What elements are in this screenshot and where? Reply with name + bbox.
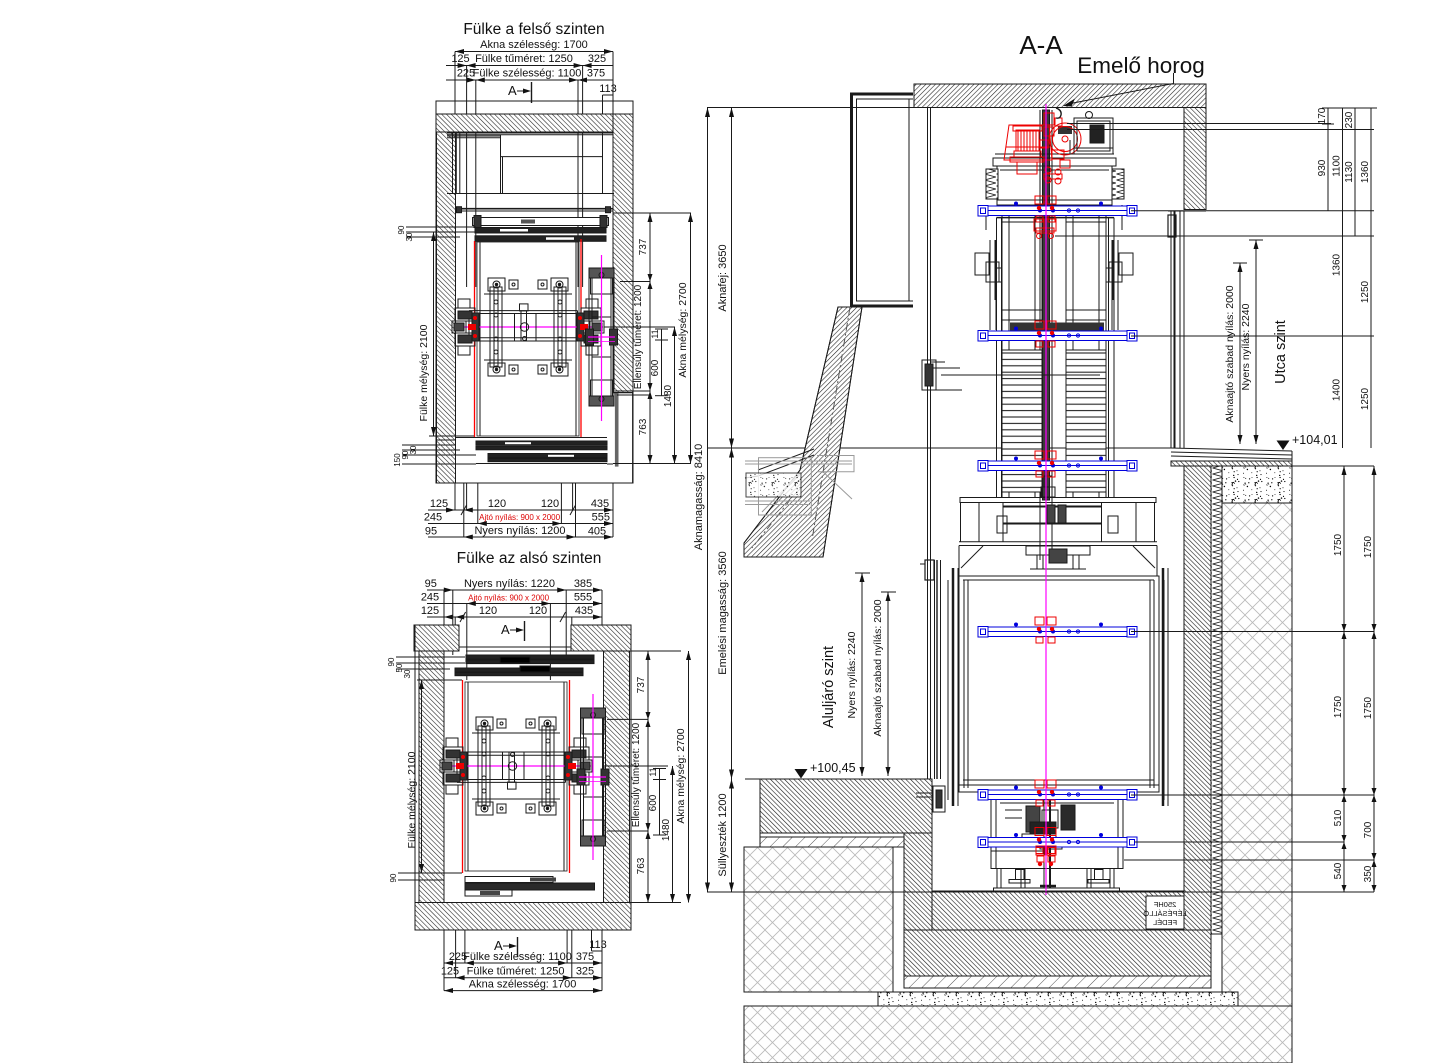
svg-text:1250: 1250 (1360, 280, 1371, 303)
svg-text:435: 435 (575, 605, 593, 617)
svg-text:763: 763 (636, 857, 647, 874)
svg-text:FEDÉL: FEDÉL (1153, 918, 1177, 927)
svg-text:LÉPÉSÁLLÓ: LÉPÉSÁLLÓ (1143, 909, 1187, 918)
svg-text:Emelő horog: Emelő horog (1077, 53, 1205, 78)
svg-text:Nyers nyílás: 2240: Nyers nyílás: 2240 (846, 631, 858, 718)
svg-text:385: 385 (574, 578, 592, 590)
svg-text:600: 600 (648, 794, 659, 811)
svg-text:95: 95 (425, 526, 437, 538)
svg-text:+104,01: +104,01 (1292, 433, 1338, 447)
svg-text:125: 125 (441, 966, 459, 978)
svg-text:125: 125 (430, 498, 448, 510)
svg-text:763: 763 (638, 418, 649, 435)
svg-text:325: 325 (588, 53, 606, 65)
svg-text:245: 245 (424, 512, 442, 524)
svg-text:555: 555 (574, 592, 592, 604)
svg-text:1130: 1130 (1344, 161, 1355, 183)
svg-text:737: 737 (636, 676, 647, 693)
svg-text:Fülke szélesség: 1100: Fülke szélesség: 1100 (473, 68, 582, 80)
svg-text:113: 113 (589, 939, 607, 951)
svg-text:1750: 1750 (1363, 696, 1374, 719)
svg-text:Süllyeszték 1200: Süllyeszték 1200 (717, 793, 729, 876)
svg-text:Fülke a felső szinten: Fülke a felső szinten (463, 21, 604, 38)
svg-text:Aknafej: 3650: Aknafej: 3650 (717, 244, 729, 311)
svg-text:A-A: A-A (1019, 30, 1063, 60)
svg-text:A: A (501, 622, 510, 637)
svg-text:A: A (508, 83, 517, 98)
svg-text:1750: 1750 (1333, 533, 1344, 556)
svg-text:Fülke tűméret: 1250: Fülke tűméret: 1250 (475, 53, 573, 65)
svg-text:1400: 1400 (1332, 378, 1343, 401)
svg-text:1480: 1480 (663, 384, 674, 407)
svg-text:250HF: 250HF (1153, 900, 1176, 909)
svg-text:120: 120 (488, 498, 506, 510)
svg-text:95: 95 (425, 578, 437, 590)
svg-text:120: 120 (479, 605, 497, 617)
svg-text:405: 405 (588, 526, 606, 538)
svg-text:555: 555 (592, 512, 610, 524)
svg-text:Ajtó nyílás: 900 x 2000: Ajtó nyílás: 900 x 2000 (479, 513, 560, 522)
svg-text:Akna mélység: 2700: Akna mélység: 2700 (675, 728, 687, 823)
svg-text:125: 125 (421, 605, 439, 617)
svg-text:700: 700 (1363, 821, 1374, 838)
svg-text:1360: 1360 (1360, 160, 1371, 183)
svg-text:Akna szélesség: 1700: Akna szélesség: 1700 (480, 39, 588, 51)
svg-text:Aknamagasság: 8410: Aknamagasság: 8410 (693, 444, 705, 550)
svg-text:Ajtó nyílás: 900 x 2000: Ajtó nyílás: 900 x 2000 (468, 594, 549, 603)
svg-text:375: 375 (587, 68, 605, 80)
svg-text:600: 600 (650, 359, 661, 376)
svg-text:350: 350 (1363, 865, 1374, 882)
svg-text:510: 510 (1333, 809, 1344, 826)
svg-text:Nyers nyílás: 2240: Nyers nyílás: 2240 (1240, 303, 1252, 390)
svg-text:Nyers nyílás: 1220: Nyers nyílás: 1220 (464, 578, 555, 590)
svg-text:Fülke tűméret: 1250: Fülke tűméret: 1250 (467, 966, 565, 978)
svg-text:30: 30 (403, 669, 412, 678)
svg-text:113: 113 (599, 83, 617, 95)
svg-text:230: 230 (1344, 111, 1355, 128)
svg-text:Akna szélesség: 1700: Akna szélesség: 1700 (469, 979, 577, 991)
svg-text:375: 375 (576, 951, 594, 963)
svg-text:Emelési magasság: 3560: Emelési magasság: 3560 (717, 551, 729, 675)
svg-text:Ellensúly tűméret: 1200: Ellensúly tűméret: 1200 (631, 722, 642, 827)
svg-text:11: 11 (650, 329, 660, 338)
svg-text:11: 11 (648, 767, 658, 776)
svg-text:Akna mélység: 2700: Akna mélység: 2700 (677, 282, 689, 377)
svg-text:30: 30 (405, 232, 414, 241)
svg-text:Nyers nyílás: 1200: Nyers nyílás: 1200 (474, 525, 565, 537)
svg-text:1750: 1750 (1333, 695, 1344, 718)
svg-text:+100,45: +100,45 (810, 761, 856, 775)
svg-text:Fülke az alsó szinten: Fülke az alsó szinten (457, 550, 602, 567)
svg-text:Fülke mélység: 2100: Fülke mélység: 2100 (418, 324, 430, 421)
svg-text:737: 737 (638, 238, 649, 255)
svg-text:245: 245 (421, 592, 439, 604)
svg-text:1360: 1360 (1332, 253, 1343, 276)
svg-text:540: 540 (1333, 862, 1344, 879)
svg-text:1250: 1250 (1360, 387, 1371, 410)
svg-text:Aknaajtó szabad nyílás: 2000: Aknaajtó szabad nyílás: 2000 (872, 599, 884, 736)
svg-text:325: 325 (576, 966, 594, 978)
svg-text:1750: 1750 (1363, 535, 1374, 558)
svg-text:Utca szint: Utca szint (1273, 320, 1289, 384)
svg-text:120: 120 (541, 498, 559, 510)
svg-text:Fülke mélység: 2100: Fülke mélység: 2100 (406, 751, 418, 848)
svg-text:930: 930 (1317, 159, 1328, 176)
svg-text:170: 170 (1317, 107, 1328, 124)
svg-text:120: 120 (529, 605, 547, 617)
svg-text:Ellensúly tűméret: 1200: Ellensúly tűméret: 1200 (633, 284, 644, 389)
svg-text:1100: 1100 (1332, 155, 1343, 177)
svg-text:90: 90 (389, 873, 398, 882)
svg-text:Aknaajtó szabad nyílás: 2000: Aknaajtó szabad nyílás: 2000 (1224, 285, 1236, 422)
svg-text:A: A (494, 938, 503, 953)
svg-text:125: 125 (451, 53, 469, 65)
svg-text:1480: 1480 (661, 818, 672, 841)
svg-text:Aluljáró szint: Aluljáró szint (821, 646, 837, 728)
svg-text:30: 30 (409, 445, 418, 454)
